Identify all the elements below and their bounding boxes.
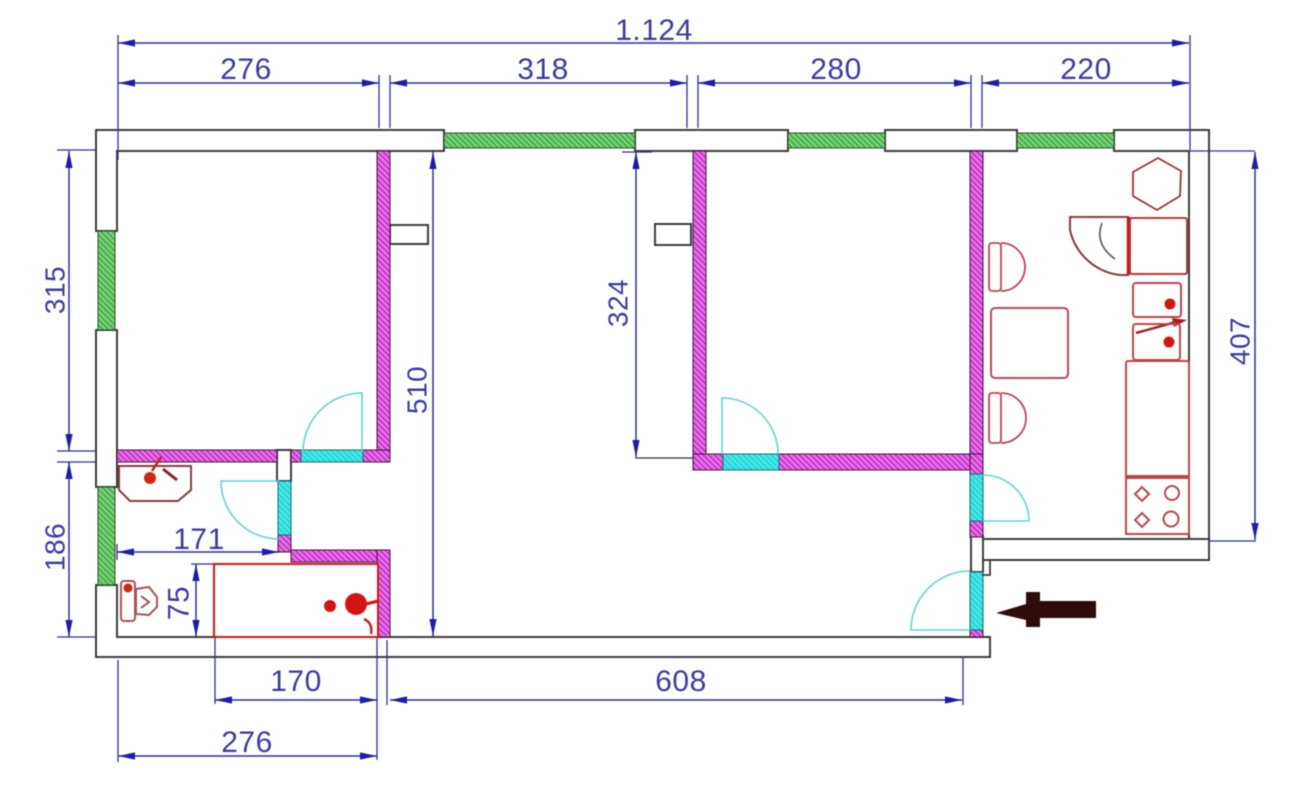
svg-text:171: 171 bbox=[173, 523, 225, 556]
svg-text:170: 170 bbox=[270, 665, 322, 698]
svg-text:608: 608 bbox=[655, 665, 707, 698]
svg-text:280: 280 bbox=[810, 53, 862, 86]
svg-text:315: 315 bbox=[40, 266, 71, 314]
svg-text:1.124: 1.124 bbox=[615, 14, 693, 47]
svg-text:276: 276 bbox=[220, 53, 272, 86]
svg-text:407: 407 bbox=[1225, 317, 1256, 365]
svg-text:186: 186 bbox=[40, 523, 71, 571]
svg-text:75: 75 bbox=[163, 586, 196, 620]
svg-text:510: 510 bbox=[402, 366, 433, 414]
svg-text:276: 276 bbox=[221, 726, 273, 759]
svg-text:220: 220 bbox=[1060, 53, 1112, 86]
svg-text:324: 324 bbox=[603, 279, 634, 327]
svg-text:318: 318 bbox=[517, 53, 569, 86]
